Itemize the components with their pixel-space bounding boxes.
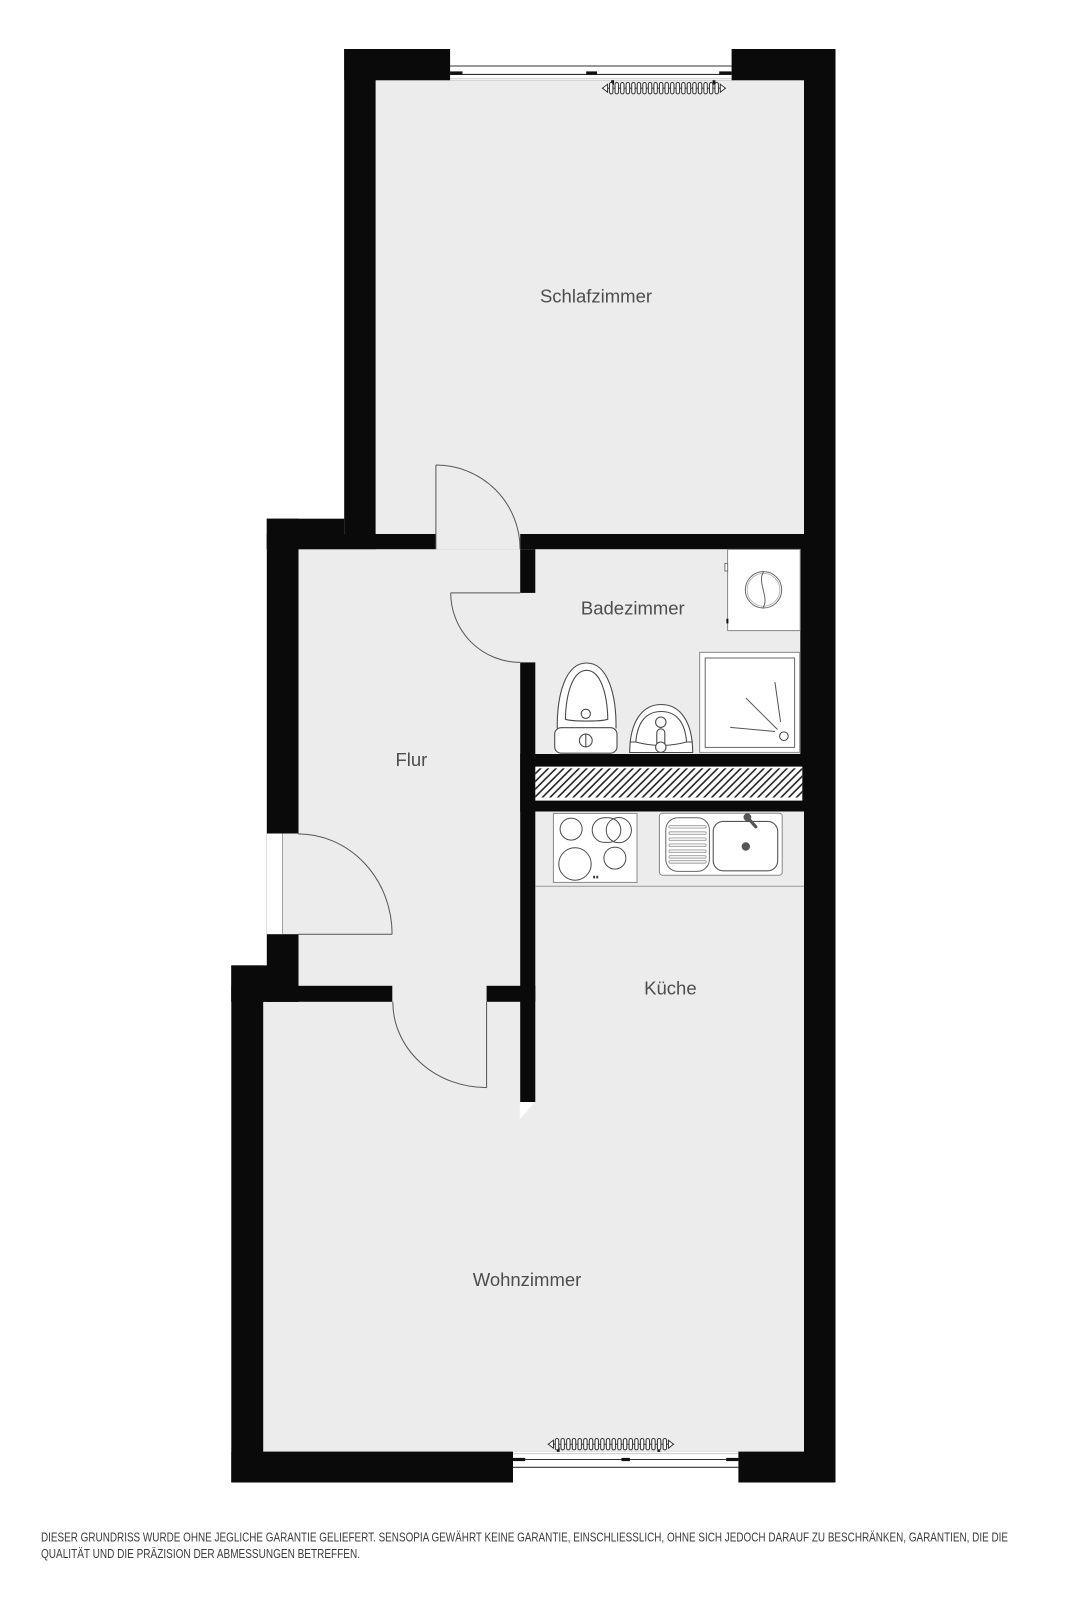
- svg-text:DIESER GRUNDRISS WURDE OHNE JE: DIESER GRUNDRISS WURDE OHNE JEGLICHE GAR…: [41, 1530, 1008, 1545]
- svg-text:Badezimmer: Badezimmer: [581, 598, 685, 619]
- svg-text:QUALITÄT UND DIE PRÄZISION DER: QUALITÄT UND DIE PRÄZISION DER ABMESSUNG…: [41, 1546, 360, 1561]
- svg-text:Küche: Küche: [644, 978, 696, 999]
- svg-text:Wohnzimmer: Wohnzimmer: [473, 1269, 582, 1290]
- svg-text:Schlafzimmer: Schlafzimmer: [540, 286, 652, 307]
- svg-text:Flur: Flur: [395, 749, 427, 770]
